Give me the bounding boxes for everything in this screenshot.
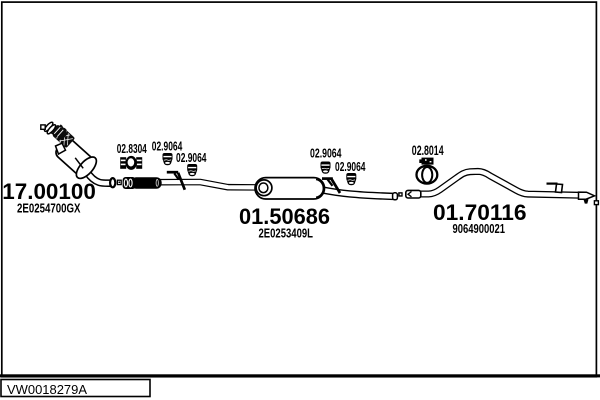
svg-text:02.9064: 02.9064 xyxy=(335,159,366,174)
svg-text:2E0254700GX: 2E0254700GX xyxy=(17,201,81,216)
svg-text:02.8014: 02.8014 xyxy=(412,143,444,158)
svg-text:2E0253409L: 2E0253409L xyxy=(259,225,314,240)
svg-text:02.8304: 02.8304 xyxy=(117,141,147,156)
svg-text:9064900021: 9064900021 xyxy=(453,222,506,236)
svg-text:02.9064: 02.9064 xyxy=(176,150,207,165)
svg-text:VW0018279A: VW0018279A xyxy=(7,382,87,397)
